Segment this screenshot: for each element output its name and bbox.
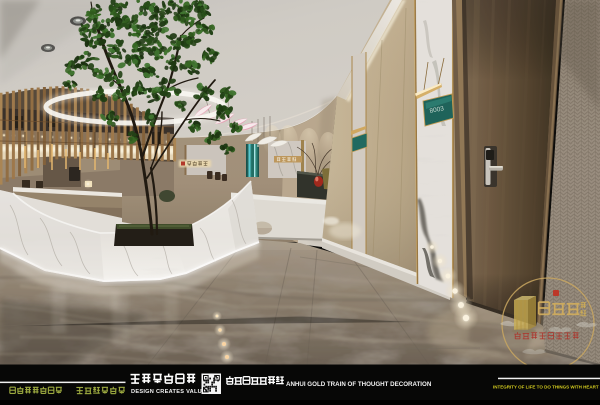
svg-text:DESIGN CREATES VALUE: DESIGN CREATES VALUE (131, 389, 206, 395)
svg-text:INTEGRITY OF LIFE TO DO THINGS: INTEGRITY OF LIFE TO DO THINGS WITH HEAR… (493, 385, 599, 390)
svg-text:ANHUI GOLD TRAIN OF THOUGHT DE: ANHUI GOLD TRAIN OF THOUGHT DECORATION (286, 381, 432, 388)
